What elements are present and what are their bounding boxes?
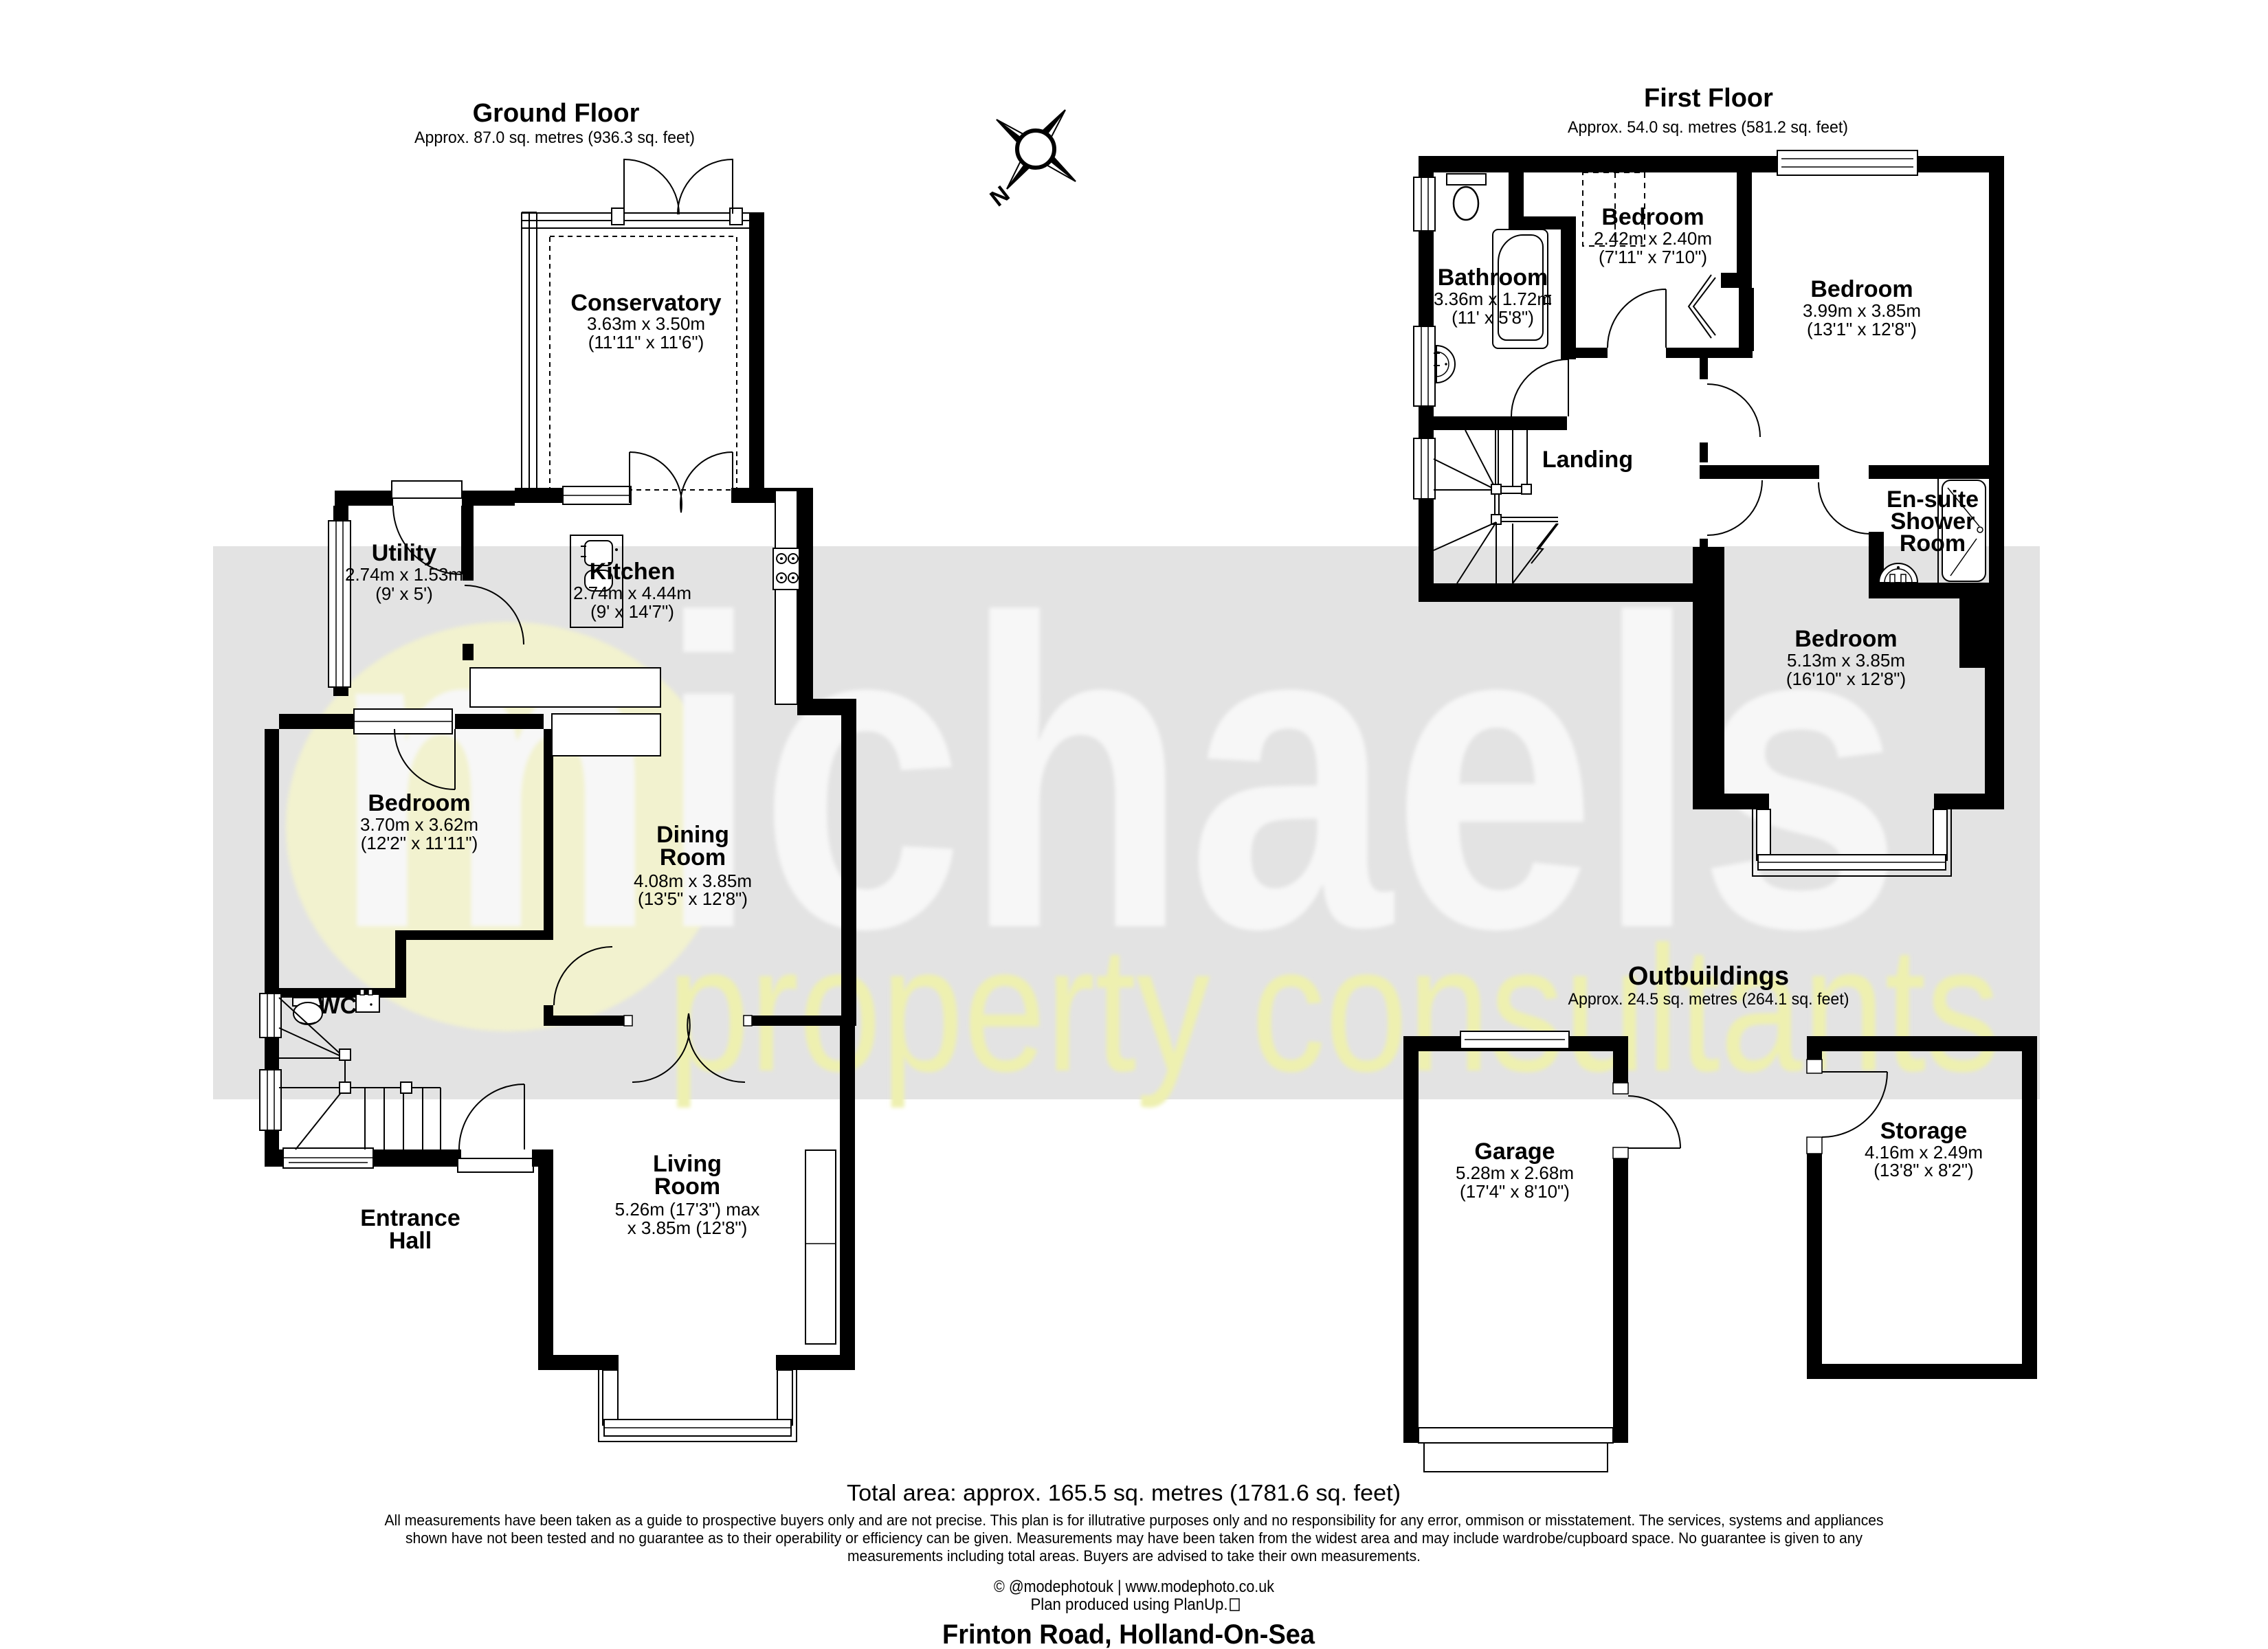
svg-text:3.36m x 1.72m: 3.36m x 1.72m — [1434, 289, 1552, 309]
svg-text:Approx. 24.5 sq. metres (264.1: Approx. 24.5 sq. metres (264.1 sq. feet) — [1568, 990, 1849, 1009]
svg-text:Frinton Road, Holland-On-Sea: Frinton Road, Holland-On-Sea — [942, 1619, 1315, 1649]
svg-text:First Floor: First Floor — [1644, 84, 1773, 113]
svg-text:3.63m x 3.50m: 3.63m x 3.50m — [587, 313, 705, 334]
svg-text:Room: Room — [654, 1174, 720, 1200]
svg-text:All measurements have been tak: All measurements have been taken as a gu… — [385, 1512, 1884, 1529]
svg-text:Total area: approx. 165.5 sq.: Total area: approx. 165.5 sq. metres (17… — [847, 1480, 1401, 1505]
svg-text:Approx. 54.0 sq. metres (581.2: Approx. 54.0 sq. metres (581.2 sq. feet) — [1568, 118, 1848, 137]
svg-text:(13'1" x 12'8"): (13'1" x 12'8") — [1807, 319, 1917, 339]
svg-text:Plan produced using PlanUp.: Plan produced using PlanUp. — [1031, 1595, 1228, 1614]
svg-text:Outbuildings: Outbuildings — [1628, 962, 1789, 991]
svg-text:(17'4" x 8'10"): (17'4" x 8'10") — [1460, 1181, 1570, 1202]
svg-text:Bathroom: Bathroom — [1438, 265, 1548, 291]
svg-text:Ground Floor: Ground Floor — [473, 99, 640, 128]
svg-text:property consultants: property consultants — [667, 910, 2000, 1110]
svg-text:Utility: Utility — [372, 540, 437, 566]
svg-text:Conservatory: Conservatory — [570, 290, 721, 316]
svg-text:shown have not been tested and: shown have not been tested and no guaran… — [405, 1529, 1863, 1547]
svg-text:3.70m x 3.62m: 3.70m x 3.62m — [360, 814, 478, 835]
svg-text:Room: Room — [660, 844, 726, 871]
svg-text:Storage: Storage — [1880, 1118, 1968, 1144]
svg-text:2.74m x 4.44m: 2.74m x 4.44m — [573, 583, 691, 603]
svg-text:(13'5" x 12'8"): (13'5" x 12'8") — [638, 888, 748, 909]
svg-text:Garage: Garage — [1474, 1138, 1555, 1165]
svg-text:(9' x 14'7"): (9' x 14'7") — [590, 601, 674, 622]
svg-text:Landing: Landing — [1542, 447, 1633, 473]
svg-text:Bedroom: Bedroom — [368, 790, 470, 816]
svg-text:Bedroom: Bedroom — [1601, 204, 1704, 230]
svg-text:Hall: Hall — [389, 1228, 432, 1254]
svg-text:5.28m x 2.68m: 5.28m x 2.68m — [1456, 1163, 1574, 1183]
svg-text:Kitchen: Kitchen — [590, 559, 676, 585]
svg-text:(16'10" x 12'8"): (16'10" x 12'8") — [1786, 669, 1906, 689]
svg-text:2.42m x 2.40m: 2.42m x 2.40m — [1594, 228, 1712, 249]
svg-text:5.26m (17'3") max: 5.26m (17'3") max — [615, 1199, 760, 1220]
svg-text:x 3.85m (12'8"): x 3.85m (12'8") — [627, 1218, 748, 1238]
svg-text:(9' x 5'): (9' x 5') — [375, 583, 433, 604]
svg-text:2.74m x 1.53m: 2.74m x 1.53m — [345, 564, 463, 585]
svg-text:Room: Room — [1900, 530, 1966, 557]
svg-text:(13'8" x 8'2"): (13'8" x 8'2") — [1874, 1160, 1973, 1180]
svg-text:(7'11" x 7'10"): (7'11" x 7'10") — [1599, 247, 1707, 267]
svg-text:measurements including total a: measurements including total areas. Buye… — [847, 1547, 1421, 1564]
svg-text:(11'11" x 11'6"): (11'11" x 11'6") — [588, 332, 704, 352]
svg-text:Approx. 87.0 sq. metres (936.3: Approx. 87.0 sq. metres (936.3 sq. feet) — [414, 128, 695, 147]
svg-text:(12'2" x 11'11"): (12'2" x 11'11") — [361, 833, 478, 853]
svg-text:5.13m x 3.85m: 5.13m x 3.85m — [1787, 650, 1905, 671]
svg-text:© @modephotouk | www.modephoto: © @modephotouk | www.modephoto.co.uk — [994, 1578, 1275, 1596]
svg-text:Bedroom: Bedroom — [1810, 276, 1913, 302]
svg-text:WC: WC — [318, 993, 357, 1019]
svg-text:3.99m x 3.85m: 3.99m x 3.85m — [1803, 300, 1921, 321]
svg-text:(11' x 5'8"): (11' x 5'8") — [1452, 307, 1534, 328]
svg-text:Bedroom: Bedroom — [1794, 626, 1897, 652]
